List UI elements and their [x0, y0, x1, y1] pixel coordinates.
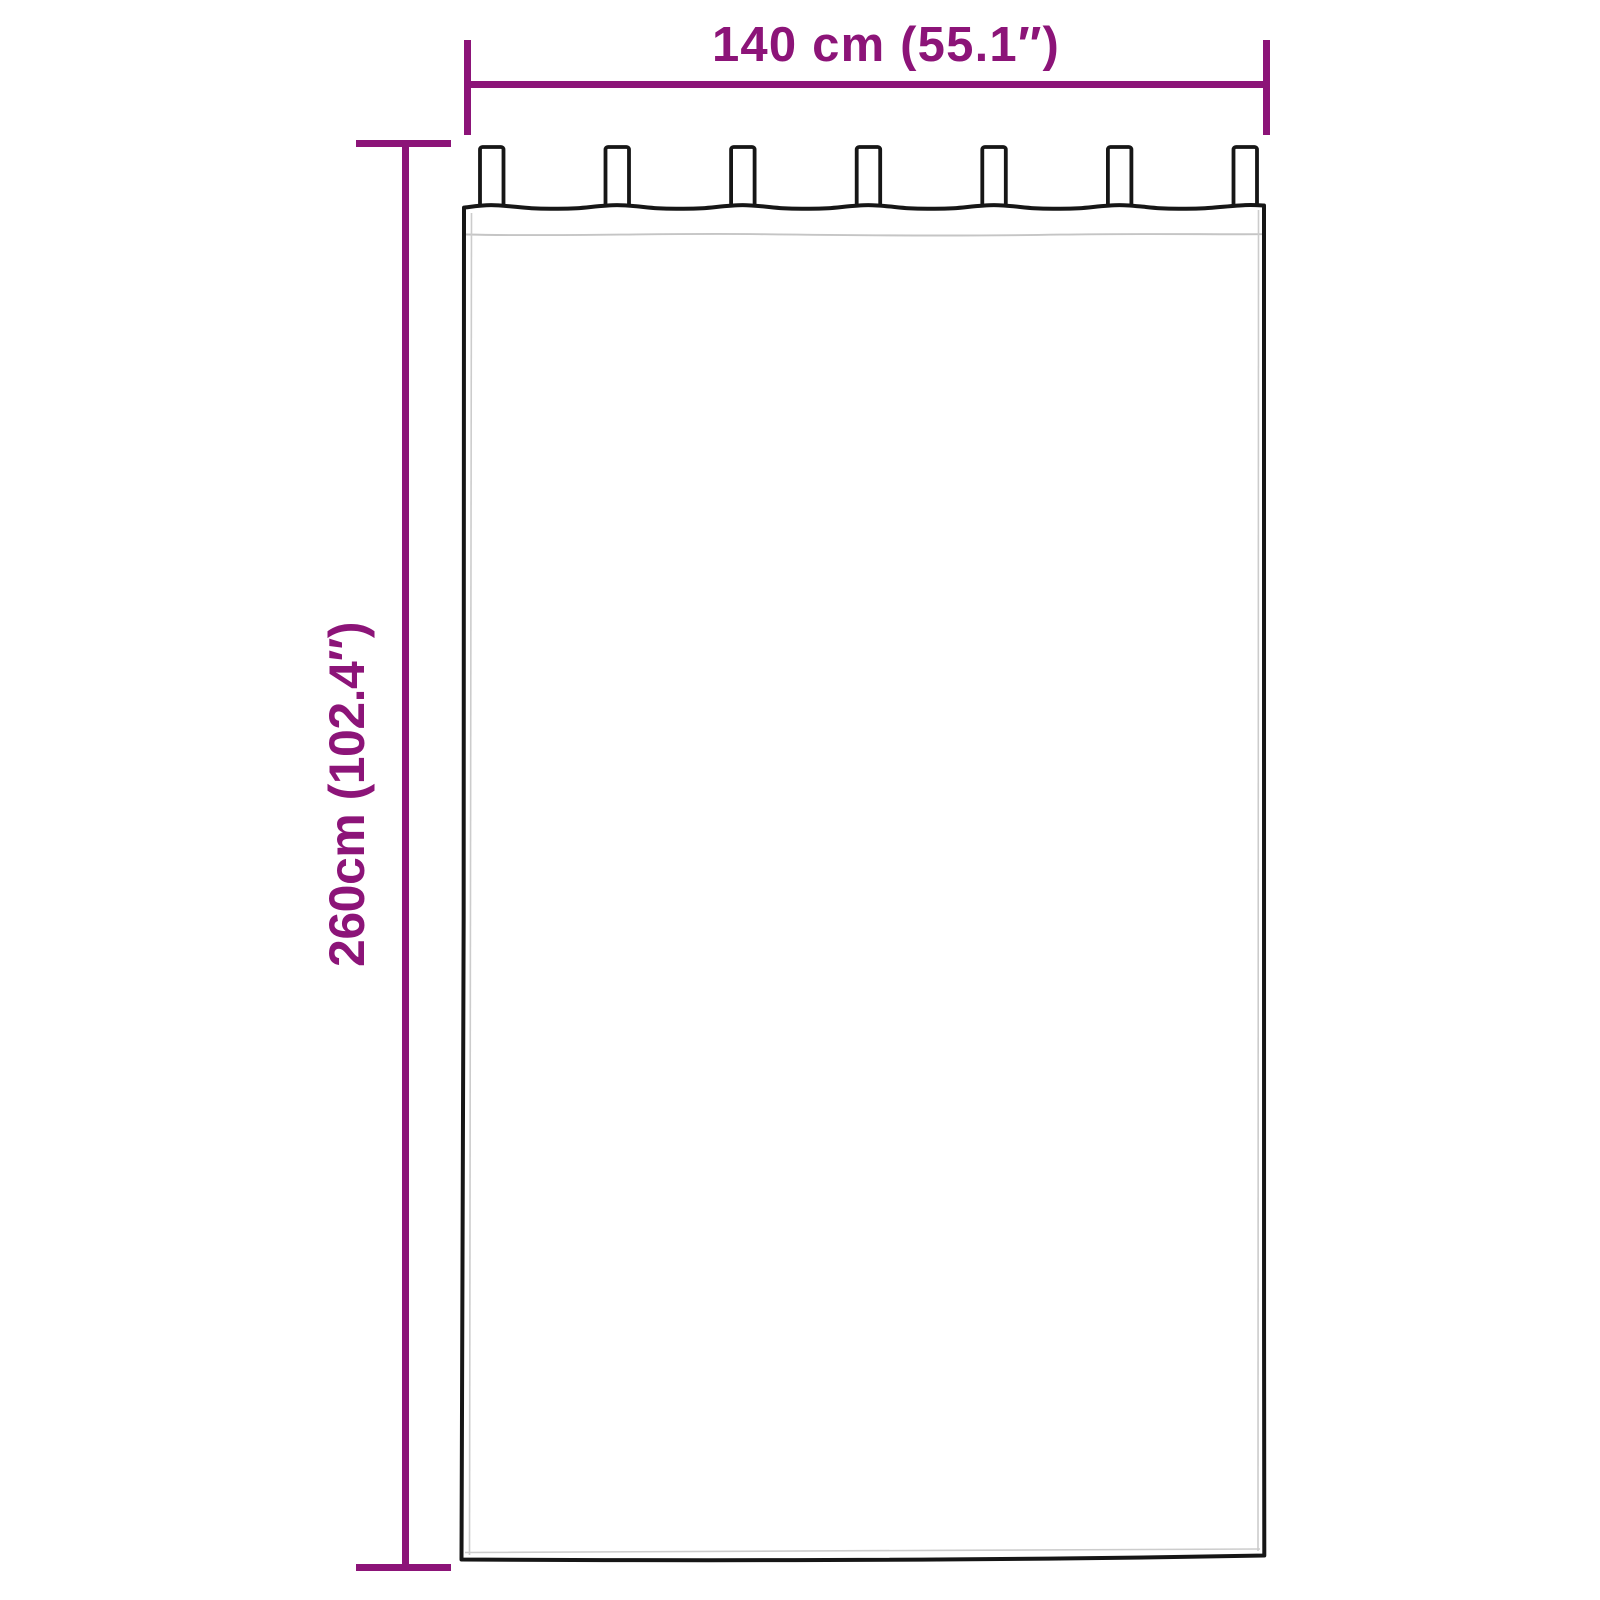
svg-text:260cm (102.4″): 260cm (102.4″)	[319, 622, 375, 967]
svg-text:140 cm (55.1″): 140 cm (55.1″)	[712, 18, 1060, 72]
